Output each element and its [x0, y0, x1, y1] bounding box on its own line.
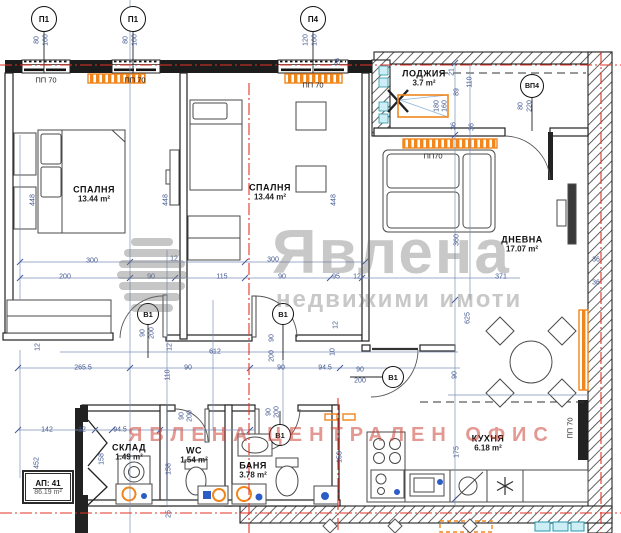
floor-plan: СПАЛНЯ 13.44 m² СПАЛНЯ 13.44 m² ЛОДЖИЯ 3…: [0, 0, 621, 533]
apartment-area: 86.19 m²: [34, 489, 62, 496]
zone-dashed-lines: [420, 73, 586, 402]
floorplan-linework: [0, 0, 621, 533]
office-stamp: ЯВЛЕНА ЦЕНТРАЛЕН ОФИС: [128, 424, 555, 447]
folding-door: [88, 420, 107, 505]
apartment-tag: АП: 41 86.19 m²: [22, 470, 74, 504]
apartment-number: АП: 41: [33, 479, 62, 489]
